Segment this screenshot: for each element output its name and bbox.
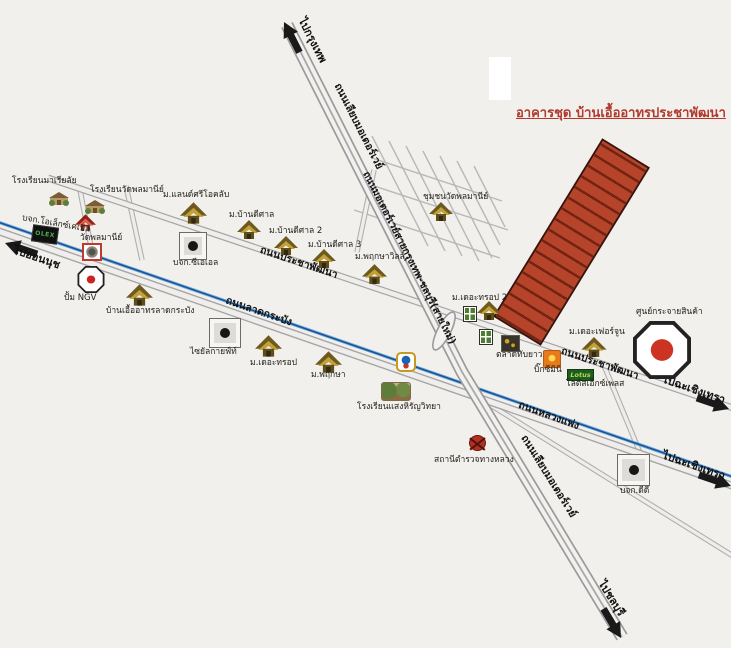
flag-icon-trop2-b xyxy=(479,329,493,345)
poi-label-the-trop: ม.เดอะทรอป xyxy=(250,359,297,368)
factory-icon-cea xyxy=(179,232,207,260)
factory-icon-siam-gift xyxy=(209,318,241,348)
house-icon-chumchon-wat xyxy=(429,202,453,222)
house-icon-the-fortune xyxy=(581,337,607,358)
distribution-center-icon xyxy=(632,321,692,379)
house-icon-ban-di-san-3 xyxy=(312,249,336,269)
poi-label-distribution-center: ศูนย์กระจายสินค้า xyxy=(636,308,703,317)
poi-label-wat-phlamani: วัดพลมานีย์ xyxy=(80,234,122,243)
road-layer xyxy=(0,0,731,648)
poi-label-ban-di-san-1: ม.บ้านดีศาล xyxy=(229,211,274,220)
map-canvas: อาคารชุด บ้านเอื้ออาทรประชาพัฒนา ไปกรุงเ… xyxy=(0,0,731,648)
poi-label-ban-di-san-3: ม.บ้านดีศาล 3 xyxy=(308,241,361,250)
factory-icon-dd xyxy=(617,454,650,486)
poi-label-land-si-o: ม.แลนด์ศรีโอคลับ xyxy=(163,191,229,200)
school-icon-saeng-hiran xyxy=(381,382,411,401)
ptt-station-icon xyxy=(396,352,416,372)
poi-label-phruksa-ville: ม.พฤกษาวิลล์ xyxy=(355,253,405,262)
ngv-station-icon xyxy=(77,266,105,293)
poi-label-the-trop-2: ม.เดอะทรอป 2 xyxy=(452,294,507,303)
house-icon-ban-di-san-1 xyxy=(237,220,261,240)
poi-label-cea: บจก.ซีเอเอล xyxy=(173,259,218,268)
poi-label-ngv: ปั้ม NGV xyxy=(64,294,96,303)
poi-label-lotus: โลตัสเอ็กซ์เพลส xyxy=(566,380,624,389)
house-icon-phruksa-ville xyxy=(362,264,387,285)
poi-label-thap-yao: ตลาดทับยาว xyxy=(496,351,543,360)
highway-police-icon xyxy=(469,435,486,451)
white-patch xyxy=(489,57,511,100)
house-icon-eua-arthorn xyxy=(126,284,153,307)
poi-label-siam-gift: ไซยัลกายฟ์ท์ xyxy=(190,348,237,357)
flag-icon-trop2-a xyxy=(463,306,477,322)
school-icon-wat-phlamani xyxy=(85,200,105,214)
poi-label-dd: บจก.ดีดี xyxy=(620,487,649,496)
lotus-logo-text: Lotus xyxy=(570,371,590,379)
olex-logo-text: OLEX xyxy=(35,230,55,240)
poi-label-chumchon-wat: ชุมชนวัดพลมานีย์ xyxy=(423,193,488,202)
map-title: อาคารชุด บ้านเอื้ออาทรประชาพัฒนา xyxy=(516,102,726,123)
poi-label-big-c-mini: บิ๊กซีมินิ xyxy=(534,366,562,375)
poi-label-saeng-hiran: โรงเรียนแสงหิรัญวิทยา xyxy=(357,403,441,412)
poi-label-phruksa: ม.พฤกษา xyxy=(311,371,346,380)
house-icon-the-trop xyxy=(255,335,282,358)
poi-label-wat-phlamani-school: โรงเรียนวัดพลมานีย์ xyxy=(90,186,164,195)
house-icon-ban-di-san-2 xyxy=(274,236,298,256)
house-icon-the-trop-2 xyxy=(477,301,501,321)
poi-label-eua-arthorn: บ้านเอื้ออาทรลาดกระบัง xyxy=(106,307,194,316)
poi-label-the-fortune: ม.เดอะเฟอร์จูน xyxy=(569,328,625,337)
temple-emblem-icon xyxy=(82,243,102,261)
school-icon-maria xyxy=(49,192,69,206)
poi-label-highway-police: สถานีตำรวจทางหลวง xyxy=(434,456,514,465)
house-icon-land-si-o xyxy=(180,202,207,225)
poi-label-maria-school: โรงเรียนมาเรียลัย xyxy=(12,177,77,186)
poi-label-ban-di-san-2: ม.บ้านดีศาล 2 xyxy=(269,227,322,236)
